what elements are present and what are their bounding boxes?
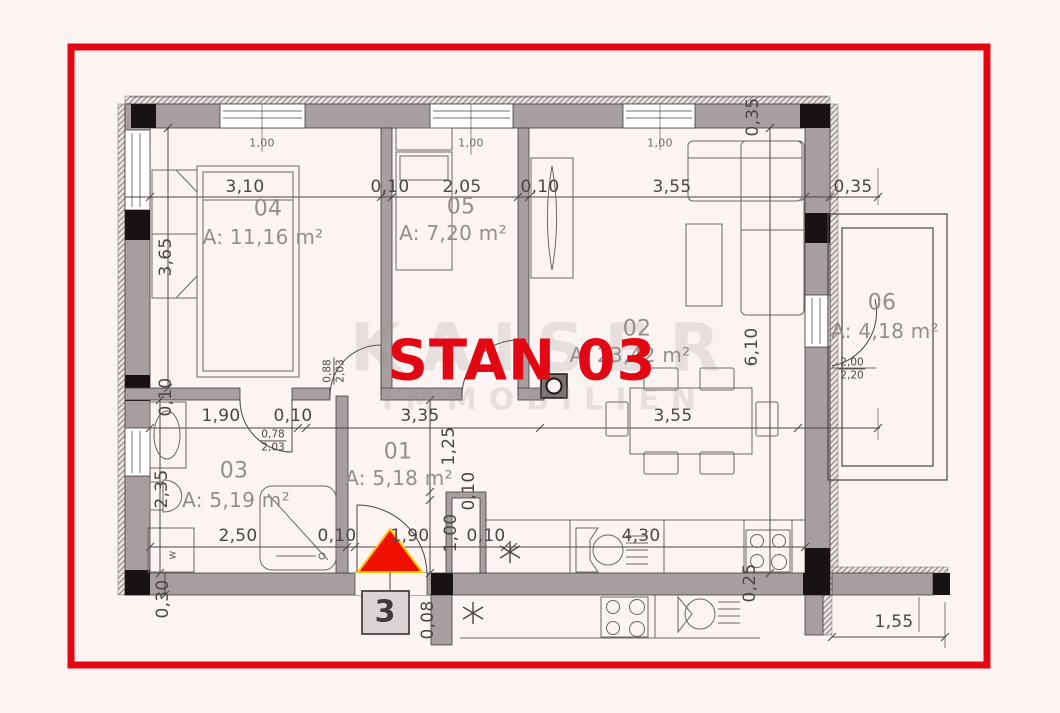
dim-bottom-right: 1,55 xyxy=(874,612,913,632)
room-05-label: 05 xyxy=(447,195,476,220)
dim-bot-1: 2,50 xyxy=(218,526,257,546)
dim-midv-3: 1,00 xyxy=(441,513,461,552)
dim-left-2: 0,10 xyxy=(156,377,176,416)
dim-mid-1: 1,90 xyxy=(201,406,240,426)
dim-top-right-vertical: 0,35 xyxy=(743,97,763,136)
room-03-area: A: 5,19 m² xyxy=(182,488,290,512)
dim-top-2: 0,10 xyxy=(370,177,409,197)
window-dim-3: 1,00 xyxy=(647,137,673,150)
dim-top-4: 0,10 xyxy=(520,177,559,197)
room-05-area: A: 7,20 m² xyxy=(399,221,507,245)
dim-top-6: 0,35 xyxy=(833,177,872,197)
dim-top-1: 3,10 xyxy=(225,177,264,197)
room-03-label: 03 xyxy=(220,459,249,484)
door-03-height: 2,03 xyxy=(259,441,286,454)
door-04-height: 2,03 xyxy=(334,357,347,384)
unit-number: 3 xyxy=(375,595,396,630)
washer-mark: w xyxy=(166,550,179,559)
dim-midv-4: 0,08 xyxy=(418,600,438,639)
window-dim-2: 1,00 xyxy=(458,137,484,150)
dim-bot-5: 4,30 xyxy=(621,526,660,546)
dim-left-4: 0,30 xyxy=(153,579,173,618)
dim-left-3: 2,35 xyxy=(152,469,172,508)
door-03-size: 0,78 2,03 xyxy=(259,428,286,453)
dim-bot-3: 1,90 xyxy=(390,526,429,546)
room-06-area: A: 4,18 m² xyxy=(831,319,939,343)
door-04-size: 0,88 2,03 xyxy=(321,357,346,384)
window-dim-1: 1,00 xyxy=(249,137,275,150)
dim-mid-2: 0,10 xyxy=(273,406,312,426)
apartment-title: STAN 03 xyxy=(388,329,657,394)
dim-bot-4: 0,10 xyxy=(466,526,505,546)
dim-right-1: 6,10 xyxy=(742,327,762,366)
room-06-label: 06 xyxy=(868,291,897,316)
room-04-label: 04 xyxy=(254,197,283,222)
room-01-area: A: 5,18 m² xyxy=(345,466,453,490)
dim-top-3: 2,05 xyxy=(442,177,481,197)
door-06-size: 2,00 2,20 xyxy=(838,356,865,381)
door-06-width: 2,00 xyxy=(840,356,863,368)
room-01-label: 01 xyxy=(384,440,413,465)
dim-top-5: 3,55 xyxy=(652,177,691,197)
door-03-width: 0,78 xyxy=(261,428,284,440)
dim-midv-1: 1,25 xyxy=(439,426,459,465)
dim-right-2: 0,25 xyxy=(740,563,760,602)
dim-midv-2: 0,10 xyxy=(459,471,479,510)
door-04-width: 0,88 xyxy=(321,359,333,382)
dim-left-1: 3,65 xyxy=(156,237,176,276)
dim-bot-2: 0,10 xyxy=(317,526,356,546)
door-06-height: 2,20 xyxy=(838,369,865,382)
room-04-area: A: 11,16 m² xyxy=(203,225,324,249)
floor-plan-page: KAISER IMMOBILIEN STAN 03 3 04 A: 11,16 … xyxy=(0,0,1060,713)
balcony-outline xyxy=(828,214,947,480)
